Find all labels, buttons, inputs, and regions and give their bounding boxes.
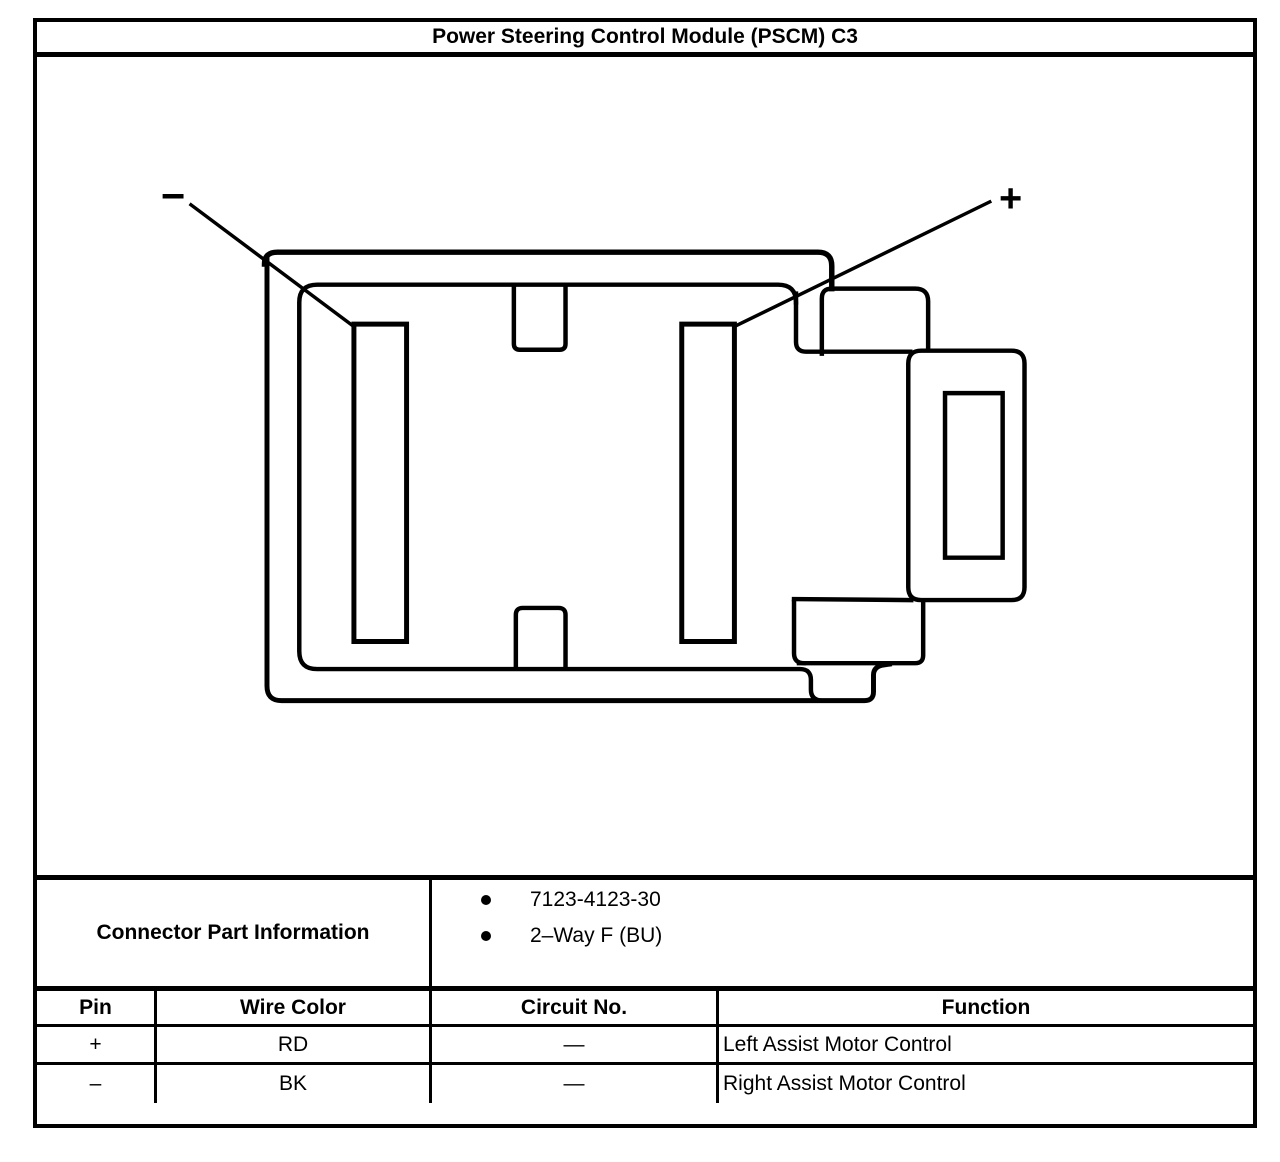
part-info-item-text: 7123-4123-30 [530,888,661,912]
cell-function: Left Assist Motor Control [719,1027,1253,1062]
header-function: Function [719,991,1253,1024]
table-body: +RD—Left Assist Motor Control–BK—Right A… [37,1027,1253,1103]
connector-document: Power Steering Control Module (PSCM) C3 [33,18,1257,1128]
table-row: –BK—Right Assist Motor Control [37,1065,1253,1103]
part-info-item-text: 2–Way F (BU) [530,924,662,948]
header-wire-color: Wire Color [157,991,432,1024]
cell-wire-color: BK [157,1065,432,1103]
plus-leader-line [737,202,989,325]
connector-part-info-section: Connector Part Information 7123-4123-302… [37,880,1253,991]
side-protrusion-outline [908,351,1024,600]
bullet-icon [481,895,491,905]
cell-pin: – [37,1065,157,1103]
minus-pin-label: − [161,172,185,219]
side-protrusion-slot [945,393,1003,558]
cavity-outline [299,285,821,701]
top-index-tab [514,287,566,350]
page-title: Power Steering Control Module (PSCM) C3 [37,22,1253,57]
bottom-index-tab [516,608,566,667]
part-info-item: 7123-4123-30 [432,882,1253,918]
bullet-icon [481,931,491,941]
upper-shelf-line [796,294,910,352]
right-terminal-slot [682,324,735,641]
header-pin: Pin [37,991,157,1024]
table-row: +RD—Left Assist Motor Control [37,1027,1253,1065]
table-header-row: Pin Wire Color Circuit No. Function [37,991,1253,1027]
lower-latch-tab-left [794,602,804,663]
connector-part-info-label: Connector Part Information [37,880,432,986]
connector-diagram: − + [37,57,1253,880]
lower-latch-tab-bottom [799,602,923,663]
cell-pin: + [37,1027,157,1062]
connector-part-info-list: 7123-4123-302–Way F (BU) [432,880,1253,986]
cell-wire-color: RD [157,1027,432,1062]
lower-shelf-line [794,599,911,600]
part-info-item: 2–Way F (BU) [432,918,1253,954]
minus-leader-line [191,205,352,325]
upper-latch-tab [822,289,928,354]
cell-circuit-no: — [432,1065,719,1103]
plus-pin-label: + [999,177,1022,221]
cell-circuit-no: — [432,1027,719,1062]
connector-drawing: − + [37,57,1253,880]
header-circuit-no: Circuit No. [432,991,719,1024]
left-terminal-slot [354,324,407,641]
cell-function: Right Assist Motor Control [719,1065,1253,1103]
